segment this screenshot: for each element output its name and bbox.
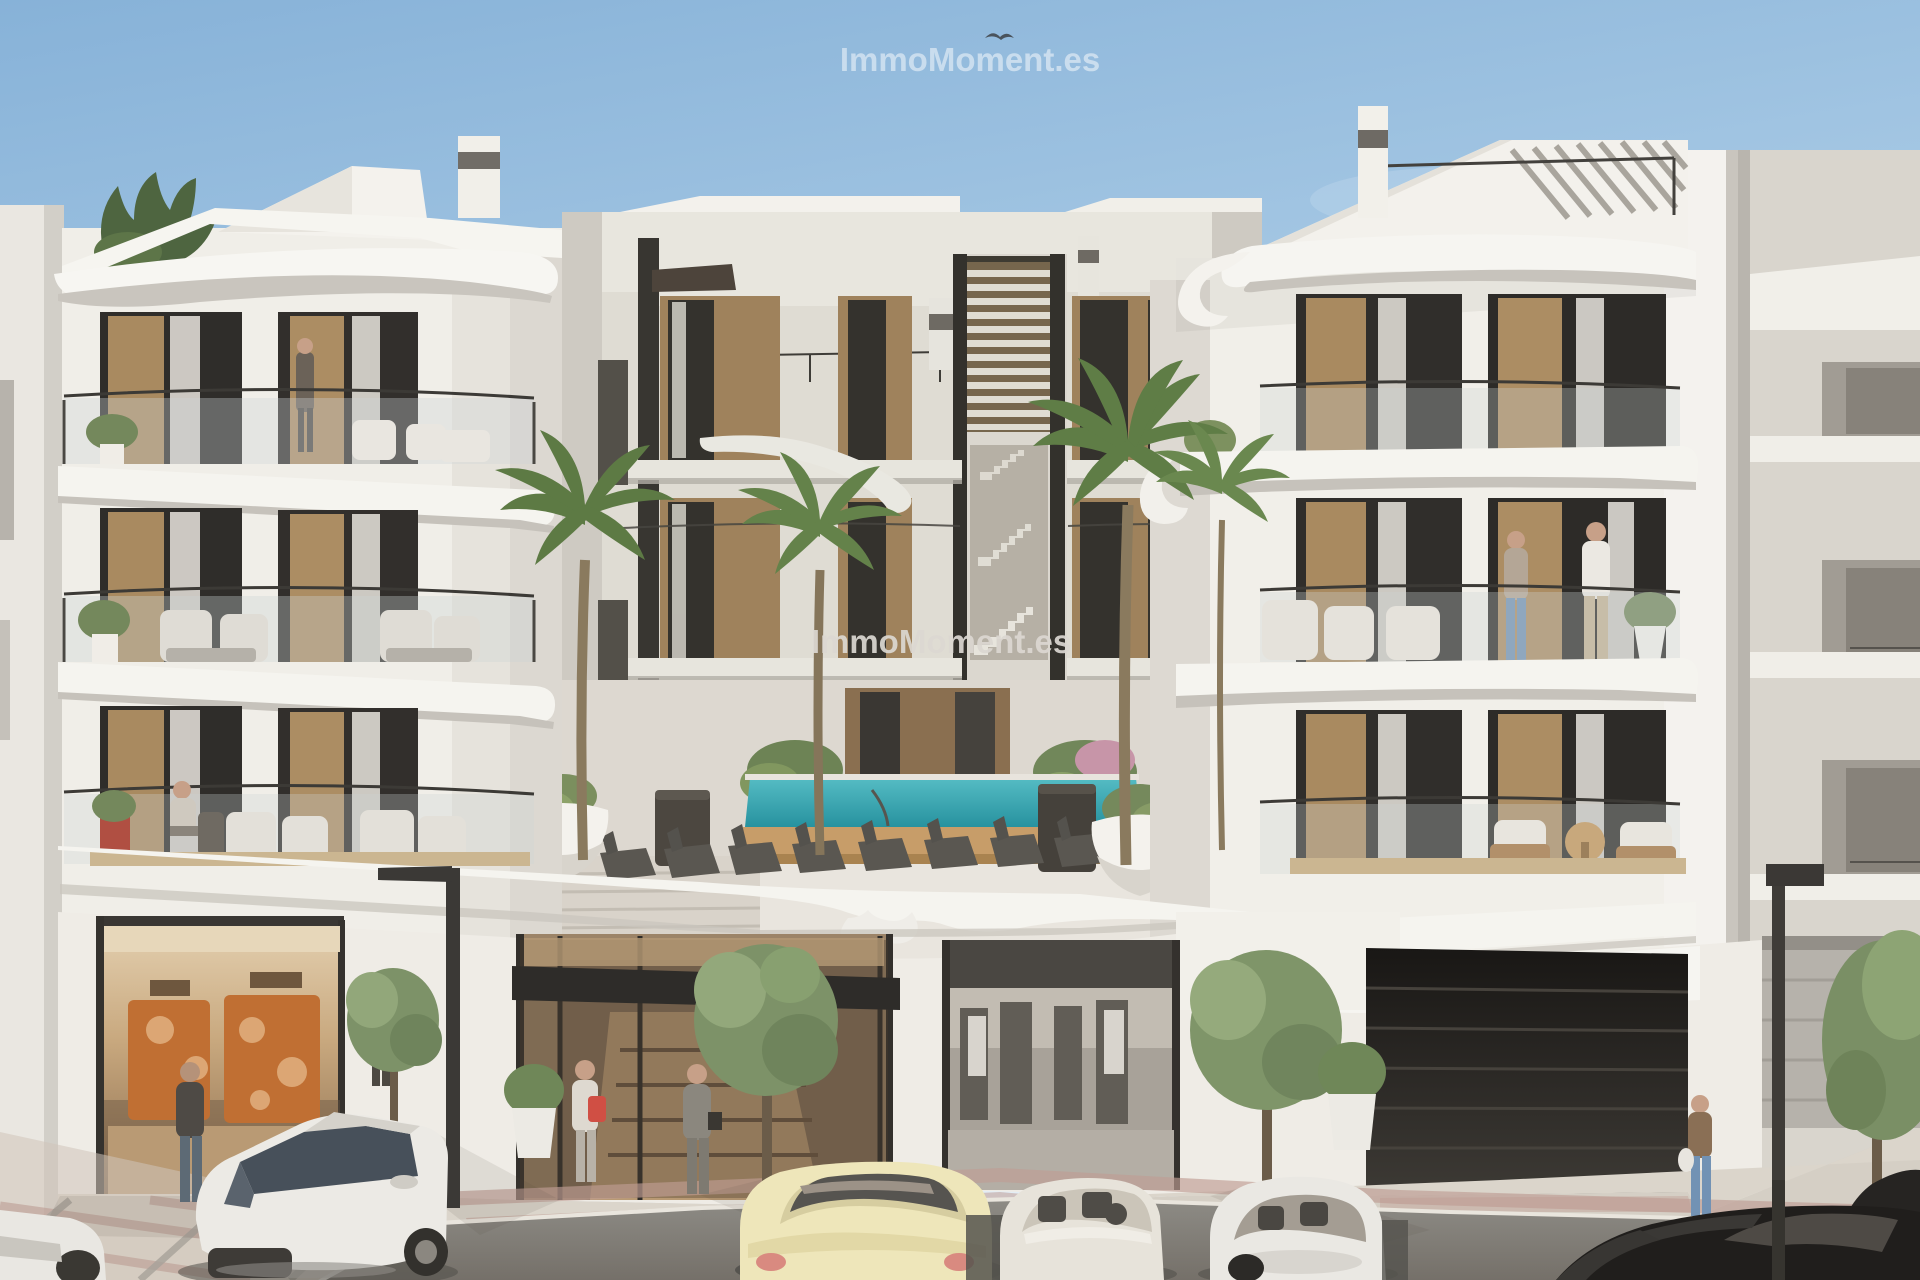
svg-text:ImmoMoment.es: ImmoMoment.es xyxy=(811,623,1071,660)
svg-text:ImmoMoment.es: ImmoMoment.es xyxy=(840,41,1100,78)
